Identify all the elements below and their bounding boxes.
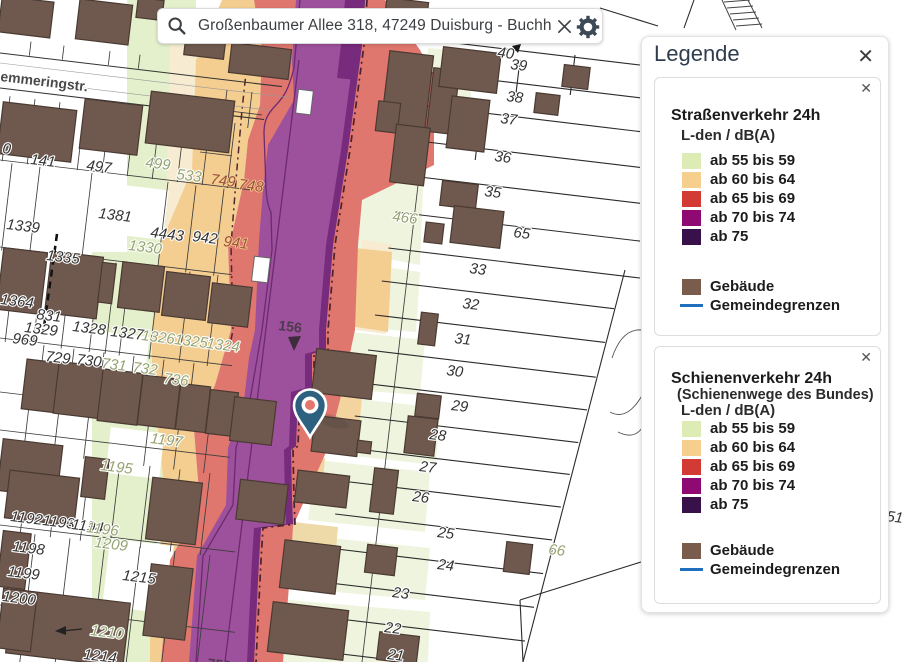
svg-text:26: 26 [411, 488, 431, 507]
svg-text:729: 729 [45, 348, 73, 368]
svg-text:730: 730 [76, 351, 104, 371]
svg-text:33: 33 [469, 260, 488, 279]
svg-text:27: 27 [418, 458, 438, 477]
svg-text:942: 942 [192, 228, 220, 248]
svg-text:36: 36 [494, 148, 513, 167]
svg-text:497: 497 [86, 157, 114, 177]
svg-text:969: 969 [12, 330, 40, 350]
svg-text:38: 38 [506, 88, 525, 107]
svg-text:65: 65 [513, 224, 532, 243]
svg-text:29: 29 [450, 397, 470, 416]
svg-text:66: 66 [548, 541, 567, 560]
svg-text:141: 141 [30, 151, 57, 171]
svg-text:533: 533 [176, 166, 204, 186]
svg-text:941: 941 [223, 233, 250, 253]
svg-text:39: 39 [510, 56, 529, 75]
svg-text:24: 24 [436, 556, 456, 575]
svg-text:21: 21 [386, 646, 406, 662]
svg-text:22: 22 [383, 619, 403, 638]
svg-text:31: 31 [454, 330, 473, 349]
svg-text:32: 32 [462, 295, 481, 314]
svg-text:466: 466 [392, 208, 420, 228]
svg-text:156: 156 [278, 317, 303, 336]
svg-text:35: 35 [484, 183, 503, 202]
svg-text:736: 736 [163, 370, 191, 390]
svg-text:28: 28 [428, 426, 448, 445]
svg-text:37: 37 [500, 110, 519, 129]
svg-text:1214: 1214 [83, 646, 118, 662]
svg-text:731: 731 [101, 355, 128, 375]
svg-text:748: 748 [238, 176, 266, 196]
svg-text:30: 30 [446, 362, 465, 381]
svg-text:23: 23 [391, 584, 411, 603]
svg-text:732: 732 [132, 359, 160, 379]
svg-text:749: 749 [210, 171, 238, 191]
svg-text:25: 25 [436, 524, 456, 543]
svg-text:499: 499 [145, 154, 173, 174]
